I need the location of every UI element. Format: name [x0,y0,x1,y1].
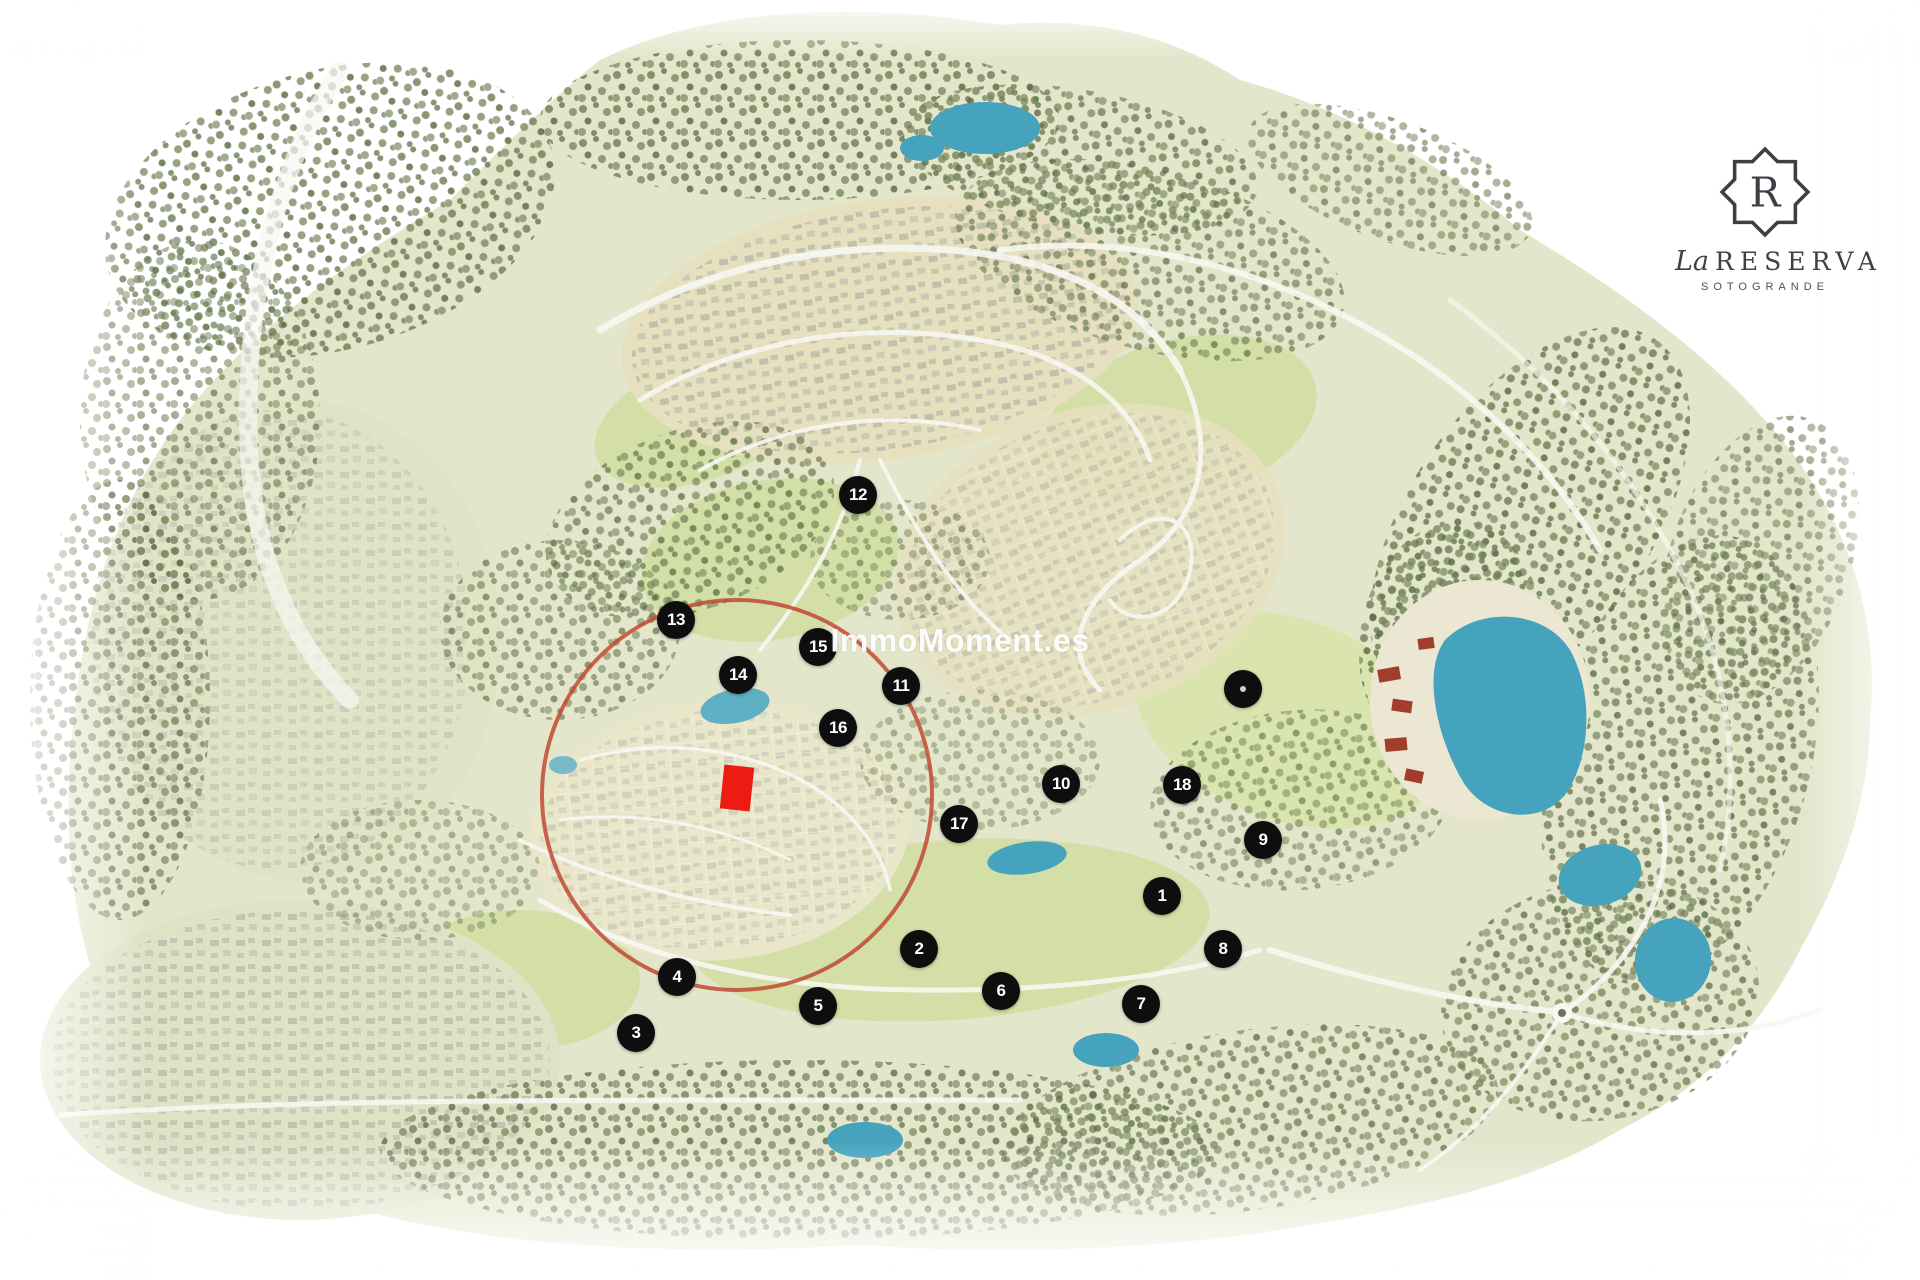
masterplan-image[interactable]: 123456789101112131415161718 ImmoMoment.e… [0,0,1920,1280]
marker-label: 6 [997,981,1006,1001]
map-marker-16: 16 [819,709,857,747]
logo-name-caps: RESERVA [1715,247,1882,276]
map-marker-3: 3 [617,1014,655,1052]
marker-label: 8 [1219,939,1228,959]
marker-label: 9 [1259,830,1268,850]
map-marker-unlabeled [1224,670,1262,708]
marker-label: 3 [632,1023,641,1043]
marker-label: 1 [1158,886,1167,906]
map-marker-18: 18 [1163,766,1201,804]
map-marker-17: 17 [940,805,978,843]
map-marker-8: 8 [1204,930,1242,968]
logo-name-script: La [1675,246,1709,277]
logo-name: LaRESERVA [1675,246,1855,277]
map-marker-9: 9 [1244,821,1282,859]
logo-initial: R [1750,168,1782,216]
brand-logo: R LaRESERVA SOTOGRANDE [1675,146,1855,293]
marker-label: 13 [667,610,685,630]
marker-label: 4 [673,967,682,987]
map-marker-10: 10 [1042,765,1080,803]
map-marker-4: 4 [658,958,696,996]
eight-point-star-icon: R [1719,146,1811,238]
map-marker-5: 5 [799,987,837,1025]
marker-label: 16 [829,718,847,738]
map-marker-14: 14 [719,656,757,694]
marker-label: 5 [814,996,823,1016]
map-marker-7: 7 [1122,985,1160,1023]
marker-label: 12 [849,485,867,505]
marker-label: 15 [809,637,827,657]
map-marker-6: 6 [982,972,1020,1010]
marker-label [1240,686,1246,692]
marker-label: 11 [893,676,910,696]
map-marker-12: 12 [839,476,877,514]
logo-subtitle: SOTOGRANDE [1675,281,1855,293]
map-marker-2: 2 [900,930,938,968]
marker-label: 7 [1137,994,1146,1014]
map-marker-13: 13 [657,601,695,639]
marker-label: 17 [950,814,968,834]
marker-label: 2 [915,939,924,959]
marker-label: 18 [1173,775,1191,795]
marker-label: 14 [729,665,747,685]
watermark-text: ImmoMoment.es [831,623,1090,660]
map-marker-1: 1 [1143,877,1181,915]
marker-label: 10 [1052,774,1070,794]
map-marker-11: 11 [882,667,920,705]
